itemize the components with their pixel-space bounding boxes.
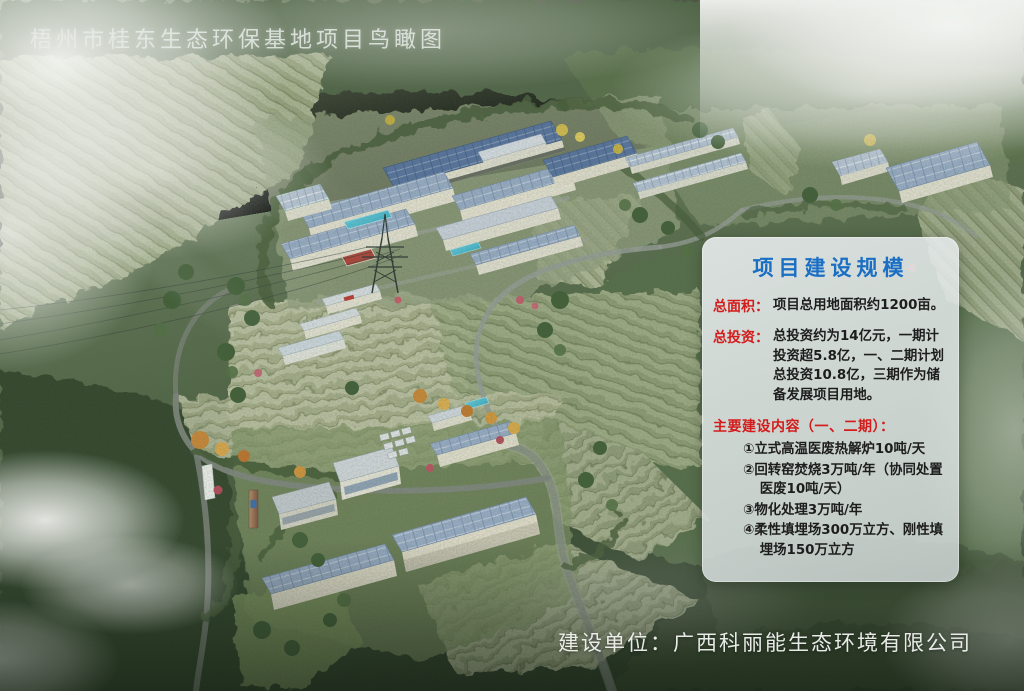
total-area-row: 总面积： 项目总用地面积约1200亩。 [713,296,948,316]
aerial-rendering-poster: 梧州市桂东生态环保基地项目鸟瞰图 项目建设规模 总面积： 项目总用地面积约120… [0,0,1024,691]
panel-header: 项目建设规模 [713,252,948,282]
page-title: 梧州市桂东生态环保基地项目鸟瞰图 [30,22,446,54]
builder-company-line: 建设单位：广西科丽能生态环境有限公司 [558,627,972,657]
investment-row: 总投资： 总投资约为14亿元，一期计投资超5.8亿，一、二期计划总投资10.8亿… [713,327,948,405]
total-area-label: 总面积： [713,296,773,316]
project-scale-panel: 项目建设规模 总面积： 项目总用地面积约1200亩。 总投资： 总投资约为14亿… [702,237,959,582]
main-content-label: 主要建设内容（一、二期）： [713,416,948,436]
content-item-2: ②回转窑焚烧3万吨/年（协同处置医废10吨/天） [743,461,948,500]
content-item-1: ①立式高温医废热解炉10吨/天 [743,440,948,460]
investment-label: 总投资： [713,327,773,347]
total-area-text: 项目总用地面积约1200亩。 [773,296,948,316]
investment-text: 总投资约为14亿元，一期计投资超5.8亿，一、二期计划总投资10.8亿，三期作为… [773,327,948,405]
content-item-4: ④柔性填埋场300万立方、刚性填埋场150万立方 [743,521,948,560]
main-content-list: ①立式高温医废热解炉10吨/天 ②回转窑焚烧3万吨/年（协同处置医废10吨/天）… [713,440,948,560]
content-item-3: ③物化处理3万吨/年 [743,501,948,521]
